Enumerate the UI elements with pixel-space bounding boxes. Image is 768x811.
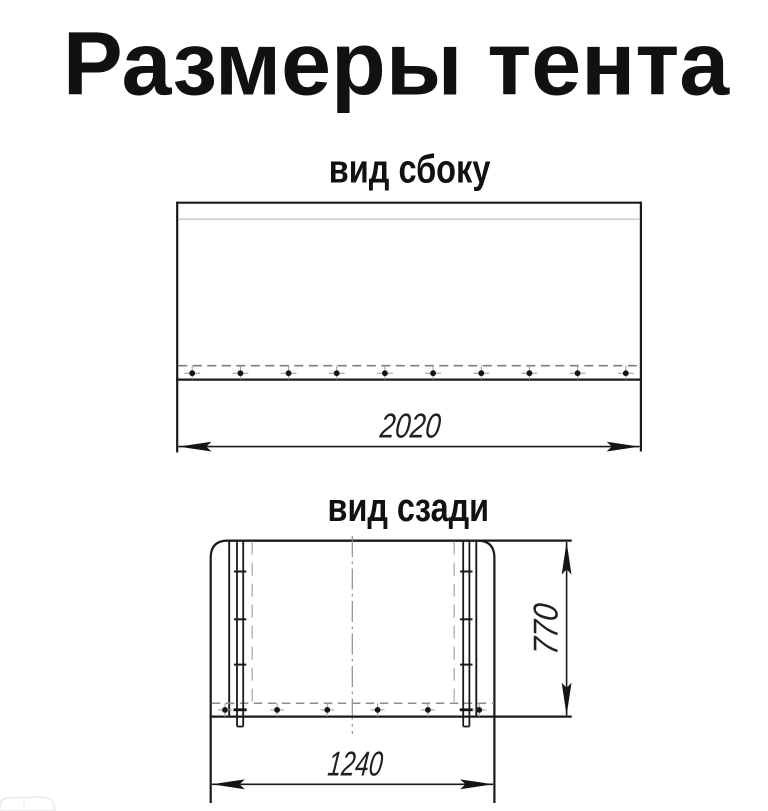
svg-text:Размеры тента: Размеры тента xyxy=(63,15,730,115)
svg-text:2020: 2020 xyxy=(377,406,443,445)
svg-text:вид сбоку: вид сбоку xyxy=(329,146,491,191)
svg-text:770: 770 xyxy=(526,601,565,656)
svg-text:1240: 1240 xyxy=(326,745,385,783)
svg-text:вид сзади: вид сзади xyxy=(328,484,490,529)
